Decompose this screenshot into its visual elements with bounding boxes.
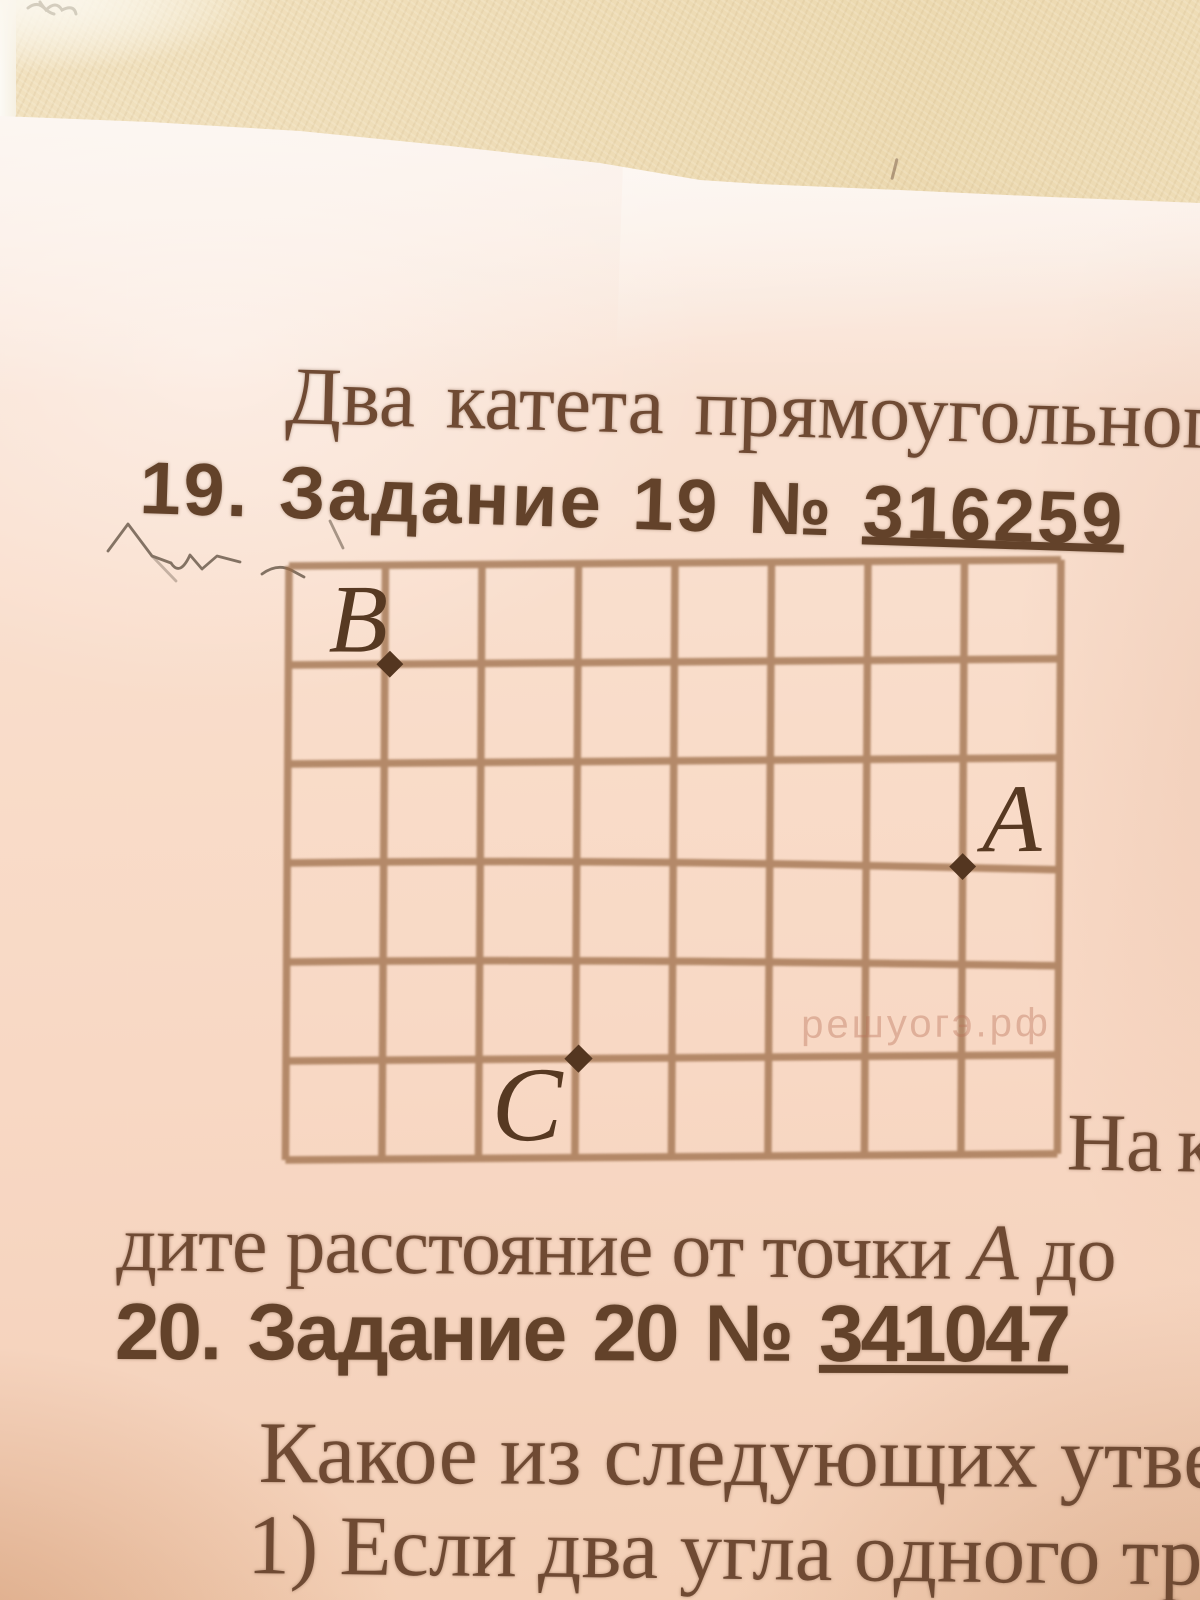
svg-text:A: A xyxy=(976,765,1043,873)
svg-text:решуогэ.рф: решуогэ.рф xyxy=(801,1001,1051,1047)
svg-text:C: C xyxy=(491,1046,564,1164)
svg-text:B: B xyxy=(328,565,388,672)
